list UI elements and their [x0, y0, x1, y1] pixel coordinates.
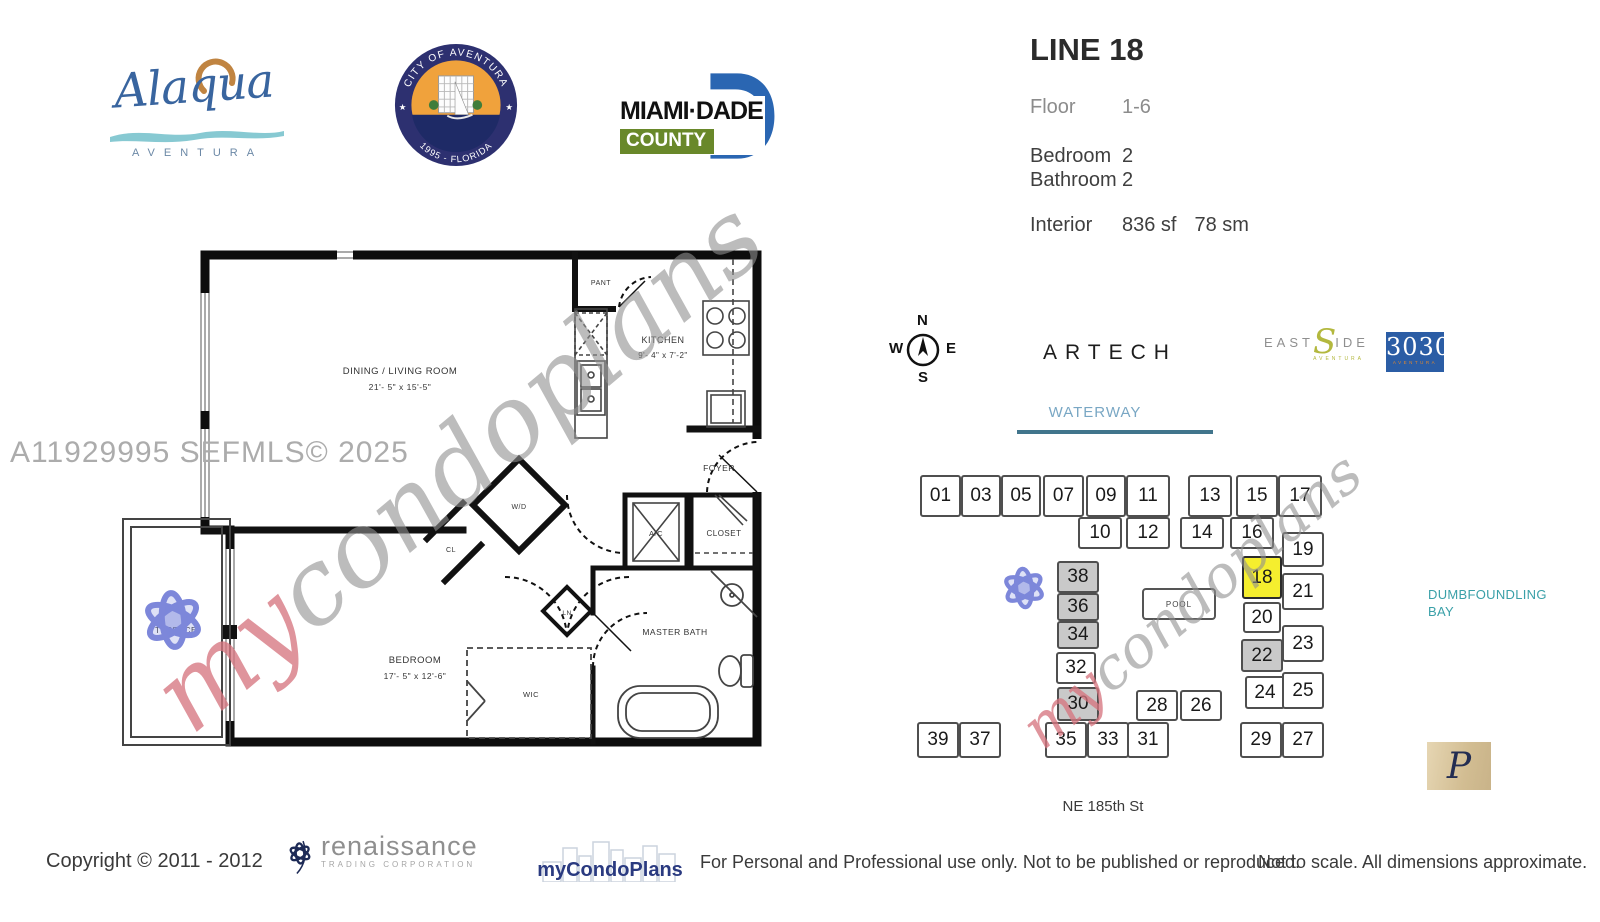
floor-row: Floor 1-6 — [1030, 96, 1151, 119]
sitemap-unit-25: 25 — [1282, 672, 1324, 709]
sitemap-unit-05: 05 — [1001, 475, 1041, 517]
sitemap-unit-38: 38 — [1057, 561, 1099, 593]
wave-icon — [110, 131, 284, 142]
p-logo-letter: P — [1447, 746, 1471, 787]
bedroom-label: Bedroom — [1030, 145, 1122, 168]
scale-note-text: Not to scale. All dimensions approximate… — [1258, 852, 1587, 873]
logo-3030-number: 3030 — [1386, 332, 1444, 362]
waterway-bar — [1017, 430, 1213, 434]
bathroom-value: 2 — [1122, 169, 1133, 192]
bay-line2: BAY — [1428, 603, 1547, 620]
sitemap-unit-17: 17 — [1278, 475, 1322, 517]
miami-dade-logo: MIAMI·DADE COUNTY — [618, 70, 778, 162]
wd-label: W/D — [511, 504, 526, 511]
compass-n: N — [917, 312, 928, 329]
dumbfoundling-bay-label: DUMBFOUNDLING BAY — [1428, 586, 1547, 620]
city-of-aventura-seal: CITY OF AVENTURA 1995 - FLORIDA ★ ★ — [393, 42, 519, 168]
bath-fixtures — [618, 571, 757, 738]
sitemap-unit-27: 27 — [1282, 722, 1324, 758]
sitemap-unit-14: 14 — [1180, 517, 1224, 549]
sitemap-unit-24: 24 — [1245, 676, 1285, 709]
sitemap-unit-39: 39 — [917, 722, 959, 758]
sitemap-unit-26: 26 — [1180, 690, 1222, 721]
sitemap-unit-13: 13 — [1188, 475, 1232, 517]
sitemap-unit-36: 36 — [1057, 593, 1099, 621]
sitemap-unit-15: 15 — [1236, 475, 1278, 517]
interior-walls — [205, 255, 757, 742]
closet-label: CLOSET — [706, 529, 741, 538]
sitemap-unit-23: 23 — [1282, 625, 1324, 662]
pantry-label: PANT — [591, 280, 611, 287]
miami-dade-name: MIAMI·DADE — [620, 97, 763, 126]
interior-sf: 836 sf — [1122, 214, 1176, 237]
sitemap-unit-28: 28 — [1136, 690, 1178, 721]
sitemap-unit-16: 16 — [1230, 517, 1274, 549]
renaissance-trefoil-icon — [283, 832, 317, 878]
sitemap-unit-34: 34 — [1057, 621, 1099, 649]
master-bath-label: MASTER BATH — [642, 627, 707, 637]
sitemap-unit-30: 30 — [1057, 687, 1099, 721]
sitemap-unit-37: 37 — [959, 722, 1001, 758]
sitemap-unit-18: 18 — [1242, 556, 1282, 599]
floorplan-sheet: Alaqua AVENTURA CITY OF AVENTURA 1995 - … — [0, 0, 1600, 922]
miami-dade-county: COUNTY — [620, 129, 714, 154]
cl-label: CL — [446, 547, 456, 554]
renaissance-logo: renaissance TRADING CORPORATION — [283, 832, 478, 878]
renaissance-name: renaissance — [321, 832, 478, 860]
bath-sink — [721, 584, 743, 606]
sitemap-unit-32: 32 — [1056, 652, 1096, 684]
compass-s: S — [918, 369, 928, 386]
seal-star-right-icon: ★ — [505, 102, 513, 112]
dining-dims: 21'- 5" x 15'-5" — [369, 382, 432, 392]
renaissance-subtitle: TRADING CORPORATION — [321, 860, 478, 869]
sitemap-unit-29: 29 — [1240, 722, 1282, 758]
alaqua-logo: Alaqua AVENTURA — [108, 45, 338, 170]
interior-label: Interior — [1030, 214, 1122, 237]
compass-e: E — [946, 340, 956, 357]
ac-label: A/C — [649, 529, 663, 538]
sitemap-unit-19: 19 — [1282, 532, 1324, 567]
eastside-ide: IDE — [1335, 335, 1369, 350]
sitemap-unit-07: 07 — [1043, 475, 1084, 517]
bedroom-dims: 17'- 5" x 12'-6" — [384, 671, 447, 681]
seal-palm-right — [472, 100, 482, 110]
floorplan-drawing: DINING / LIVING ROOM 21'- 5" x 15'-5" KI… — [115, 243, 765, 768]
eastside-s: S — [1313, 330, 1336, 354]
copyright-text: Copyright © 2011 - 2012 — [46, 850, 263, 873]
compass-rose-icon — [903, 330, 943, 370]
alaqua-name: Alaqua — [112, 54, 275, 120]
logo-3030: 3030 AVENTURA — [1386, 332, 1444, 372]
sitemap-unit-20: 20 — [1243, 602, 1281, 633]
interior-sm: 78 sm — [1194, 214, 1248, 237]
sitemap-unit-01: 01 — [920, 475, 961, 517]
p-logo: P — [1427, 742, 1491, 790]
logo-3030-subtitle: AVENTURA — [1386, 360, 1444, 365]
eastside-logo: EASTSIDE AVENTURA — [1264, 330, 1364, 376]
sitemap-unit-12: 12 — [1126, 517, 1170, 549]
compass: N W E S — [889, 312, 957, 388]
kitchen-label: KITCHEN — [641, 335, 684, 345]
sitemap-unit-11: 11 — [1126, 475, 1170, 517]
sitemap-unit-03: 03 — [961, 475, 1001, 517]
bathroom-row: Bathroom 2 — [1030, 169, 1133, 192]
line-title: LINE 18 — [1030, 32, 1144, 68]
seal-star-left-icon: ★ — [399, 102, 407, 112]
pool-label: POOL — [1142, 588, 1216, 620]
mycondoplans-name: myCondoPlans — [535, 859, 685, 882]
sitemap-unit-21: 21 — [1282, 573, 1324, 610]
windows — [198, 248, 762, 721]
kitchen-cart — [707, 391, 745, 427]
linen-label: LN — [562, 610, 571, 617]
sitemap-unit-22: 22 — [1241, 639, 1283, 672]
sitemap-unit-31: 31 — [1127, 722, 1169, 758]
trefoil-watermark-icon-small — [992, 556, 1056, 620]
floor-label: Floor — [1030, 96, 1122, 119]
artech-logo: ARTECH — [1043, 341, 1177, 365]
terrace-label: TERRACE — [155, 626, 197, 635]
mycondoplans-logo: myCondoPlans — [535, 836, 685, 884]
seal-palm-left — [429, 100, 439, 110]
street-label: NE 185th St — [1038, 798, 1168, 815]
floor-value: 1-6 — [1122, 96, 1151, 119]
bay-line1: DUMBFOUNDLING — [1428, 586, 1547, 603]
kitchen-dims: 9'- 4" x 7'-2" — [638, 351, 688, 360]
eastside-subtitle: AVENTURA — [1264, 356, 1364, 362]
waterway-label: WATERWAY — [995, 404, 1195, 421]
sitemap-unit-33: 33 — [1087, 722, 1129, 758]
eastside-east: EAST — [1264, 335, 1314, 350]
disclaimer-text: For Personal and Professional use only. … — [700, 852, 1300, 873]
sitemap-unit-09: 09 — [1086, 475, 1126, 517]
sitemap-unit-10: 10 — [1078, 517, 1122, 549]
sitemap-unit-35: 35 — [1045, 722, 1087, 758]
room-labels: DINING / LIVING ROOM 21'- 5" x 15'-5" KI… — [155, 280, 741, 699]
bathroom-label: Bathroom — [1030, 169, 1122, 192]
toilet — [719, 656, 741, 686]
bedroom-value: 2 — [1122, 145, 1133, 168]
alaqua-subtitle: AVENTURA — [132, 147, 263, 159]
interior-row: Interior 836 sf 78 sm — [1030, 214, 1249, 237]
foyer-label: FOYER — [703, 463, 735, 473]
bedroom-row: Bedroom 2 — [1030, 145, 1133, 168]
compass-w: W — [889, 340, 903, 357]
dining-label: DINING / LIVING ROOM — [343, 366, 458, 377]
wic-label: WIC — [523, 690, 539, 699]
bedroom-label: BEDROOM — [389, 655, 442, 666]
